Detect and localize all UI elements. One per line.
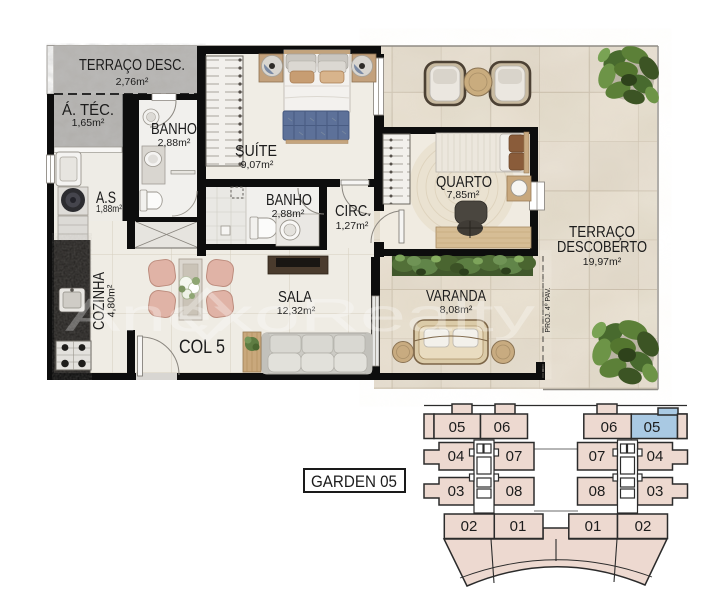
svg-text:SUÍTE: SUÍTE [235, 143, 277, 160]
svg-text:03: 03 [647, 483, 664, 500]
svg-text:1,65m²: 1,65m² [72, 117, 105, 129]
svg-text:1,88m²: 1,88m² [96, 203, 122, 215]
svg-text:05: 05 [644, 419, 661, 436]
svg-text:02: 02 [635, 518, 652, 535]
svg-text:02: 02 [461, 518, 478, 535]
svg-text:2,88m²: 2,88m² [158, 137, 191, 149]
svg-text:2,76m²: 2,76m² [116, 76, 149, 88]
svg-text:BANHO: BANHO [266, 192, 312, 209]
svg-text:08: 08 [506, 483, 523, 500]
svg-text:9,07m²: 9,07m² [241, 159, 274, 171]
svg-text:05: 05 [449, 419, 466, 436]
svg-text:BANHO: BANHO [151, 121, 197, 138]
svg-text:7,85m²: 7,85m² [447, 189, 480, 201]
svg-text:07: 07 [506, 448, 523, 465]
svg-text:04: 04 [647, 448, 664, 465]
svg-text:04: 04 [448, 448, 465, 465]
svg-text:01: 01 [585, 518, 602, 535]
svg-text:06: 06 [601, 419, 618, 436]
svg-text:AnexoRealty: AnexoRealty [65, 289, 535, 341]
svg-text:03: 03 [448, 483, 465, 500]
svg-text:08: 08 [589, 483, 606, 500]
svg-text:1,27m²: 1,27m² [336, 220, 369, 232]
svg-text:GARDEN 05: GARDEN 05 [311, 472, 397, 491]
svg-text:DESCOBERTO: DESCOBERTO [557, 239, 647, 256]
svg-text:CIRC.: CIRC. [335, 203, 371, 220]
svg-text:01: 01 [510, 518, 527, 535]
svg-text:2,88m²: 2,88m² [272, 208, 305, 220]
svg-text:TERRAÇO DESC.: TERRAÇO DESC. [79, 57, 185, 74]
svg-text:19,97m²: 19,97m² [583, 256, 622, 268]
svg-text:PROJ. 4º PAV.: PROJ. 4º PAV. [545, 287, 552, 332]
svg-text:07: 07 [589, 448, 606, 465]
svg-text:06: 06 [494, 419, 511, 436]
